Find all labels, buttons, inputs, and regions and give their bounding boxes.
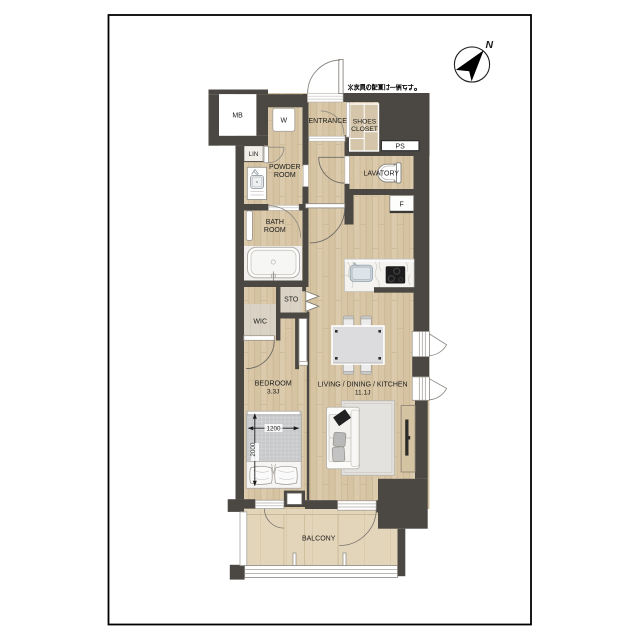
svg-text:CLOSET: CLOSET: [351, 126, 378, 133]
svg-text:MB: MB: [232, 112, 243, 119]
svg-text:LIVING / DINING / KITCHEN: LIVING / DINING / KITCHEN: [318, 381, 408, 388]
svg-text:STO: STO: [284, 297, 299, 304]
svg-text:ROOM: ROOM: [264, 227, 286, 234]
svg-text:LIN: LIN: [249, 151, 259, 158]
svg-text:ENTRANCE: ENTRANCE: [308, 118, 347, 125]
svg-text:BATH: BATH: [266, 219, 284, 226]
svg-text:SHOES: SHOES: [353, 118, 377, 125]
svg-text:N: N: [486, 39, 494, 51]
svg-text:F: F: [400, 202, 404, 209]
svg-text:POWDER: POWDER: [269, 164, 301, 171]
svg-text:2000: 2000: [250, 442, 257, 457]
svg-text:BALCONY: BALCONY: [302, 536, 336, 543]
svg-text:11.1J: 11.1J: [355, 390, 371, 397]
svg-text:W: W: [280, 117, 287, 124]
svg-text:PS: PS: [396, 143, 406, 150]
svg-text:ROOM: ROOM: [274, 172, 296, 179]
svg-text:1200: 1200: [266, 426, 281, 433]
svg-text:BEDROOM: BEDROOM: [255, 378, 292, 387]
svg-text:LAVATORY: LAVATORY: [364, 170, 400, 177]
svg-text:3.3J: 3.3J: [267, 389, 279, 396]
svg-text:WIC: WIC: [253, 319, 267, 326]
